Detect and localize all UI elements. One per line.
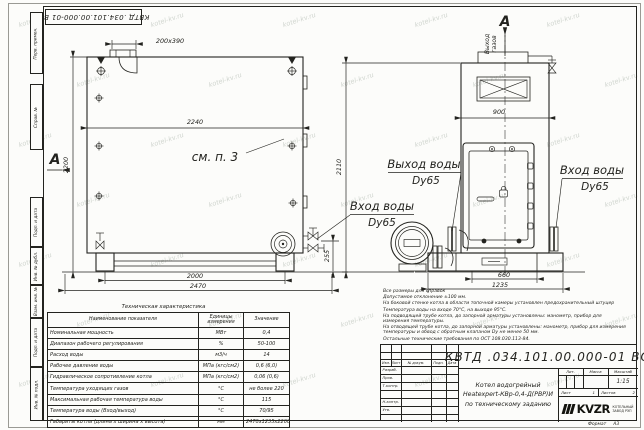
tb-row-tkontr: Т.контр. [381, 382, 403, 390]
spec-cell-unit: °С [199, 383, 244, 394]
spec-cell-unit: МВт [199, 328, 244, 339]
tb-sheet-value: 1 [593, 390, 595, 395]
dim-2000: 2000 [187, 272, 203, 280]
spec-row: Максимальная рабочая температура воды°С1… [48, 394, 290, 405]
tb-col-docnum: № докум. [401, 359, 431, 366]
dim-2470: 2470 [190, 282, 206, 290]
spec-cell-name: Номинальная мощность [48, 328, 199, 339]
spec-row: Диапазон рабочего регулирования%50-100 [48, 339, 290, 350]
tb-row-utv: Утв. [381, 406, 403, 414]
section-a-label-left: А [49, 152, 61, 168]
note-line: На боковой стенке котла в области топочн… [383, 301, 629, 306]
spec-row: Номинальная мощностьМВт0,4 [48, 328, 290, 339]
format-note: Формат А3 [588, 422, 619, 427]
water-inlet-mid-dy: Dy65 [368, 217, 396, 229]
tb-row-blank [381, 390, 403, 398]
spec-cell-name: Габариты котла (длина х ширина х высота) [48, 416, 199, 427]
spec-row: Гидравлическое сопротивление котлаМПа (к… [48, 372, 290, 383]
dim-255: 255 [323, 250, 331, 262]
spec-table: Наименование показателя Единицы измерени… [47, 312, 290, 428]
water-outlet-dy: Dy65 [412, 175, 440, 187]
inlet-valves-icon [303, 228, 324, 252]
water-outlet-label: Выход воды [387, 157, 460, 171]
nozzle-labels: Выход воды Dy65 Вход воды Dy65 Вход воды… [317, 157, 624, 239]
tb-col-list: Лист [391, 359, 401, 366]
explosion-hatch-icon [477, 77, 530, 101]
spec-cell-name: Рабочее давление воды [48, 361, 199, 372]
spec-cell-unit: МПа (кгс/см2) [199, 372, 244, 383]
tb-row-nkontr: Н.контр. [381, 398, 403, 406]
spec-cell-value: 0,6 (6,0) [244, 361, 290, 372]
tb-sheet-label: Лист [561, 390, 571, 395]
spec-cell-unit: м3/ч [199, 350, 244, 361]
product-name: Котел водогрейный Heatexpert-КВр-0,4-Д(Р… [458, 368, 558, 422]
drawing-designation: КВТД .034.101.00.000-01 ВО [458, 345, 638, 368]
tb-col-izm: Изм. [381, 359, 391, 366]
dim-2240: 2240 [187, 118, 203, 126]
spec-cell-unit: МПа (кгс/см2) [199, 361, 244, 372]
product-name-line: Heatexpert-КВр-0,4-Д(РВР)И [463, 390, 553, 400]
lifting-lug-icon [97, 57, 105, 64]
furnace-door [463, 143, 534, 248]
drain-valve-icon [96, 233, 104, 249]
blower-fan-icon [391, 222, 453, 271]
spec-cell-name: Температура уходящих газов [48, 383, 199, 394]
tb-sheets-cell: Листов 2 [598, 388, 638, 396]
drawing-sheet: kotel-kv.rukotel-kv.rukotel-kv.rukotel-k… [0, 0, 644, 430]
format-value: А3 [613, 422, 619, 427]
tb-sheets-label: Листов [601, 390, 616, 395]
note-line: Остальные технические требования по ОСТ … [383, 337, 629, 342]
tb-mass-label: Масса [583, 368, 608, 375]
tb-sheet-cell: Лист 1 [558, 388, 598, 396]
see-note-label: см. п. 3 [192, 150, 238, 164]
kvzr-logo: KVZR КОТЕЛЬНЫЙ ЗАВОД РЭП [563, 402, 634, 416]
dim-2110: 2110 [335, 159, 343, 175]
gas-exit-label-1: Выход [484, 34, 491, 54]
spec-cell-value: 0,06 (0,6) [244, 372, 290, 383]
logo-bars-icon [563, 404, 575, 414]
logo-caption-line: ЗАВОД РЭП [613, 409, 634, 413]
lifting-lug-icon [288, 57, 296, 64]
spec-header-units: Единицы измерения [199, 313, 244, 328]
boiler-front-view [391, 28, 585, 276]
spec-cell-name: Диапазон рабочего регулирования [48, 339, 199, 350]
spec-cell-name: Гидравлическое сопротивление котла [48, 372, 199, 383]
title-block: Изм. Лист № докум. Подп. Дата Разраб. Пр… [380, 344, 637, 421]
water-inlet-mid-label: Вход воды [350, 199, 414, 213]
spec-row: Расход водым3/ч14 [48, 350, 290, 361]
note-line: На отводящей трубе котла, до запорной ар… [383, 325, 629, 335]
water-inlet-right-dy: Dy65 [581, 181, 609, 193]
dim-660: 660 [498, 271, 510, 279]
spec-cell-value: 0,4 [244, 328, 290, 339]
spec-cell-value: 115 [244, 394, 290, 405]
manufacturer-logo-cell: KVZR КОТЕЛЬНЫЙ ЗАВОД РЭП [558, 396, 638, 422]
spec-row: Рабочее давление водыМПа (кгс/см2)0,6 (6… [48, 361, 290, 372]
tb-col-podp: Подп. [431, 359, 446, 366]
spec-cell-unit: °С [199, 405, 244, 416]
tb-sheets-value: 2 [633, 390, 635, 395]
spec-cell-unit: % [199, 339, 244, 350]
logo-text: KVZR [577, 402, 610, 416]
spec-cell-unit: мм [199, 416, 244, 427]
note-line: Температура воды на входе 70°С, на выход… [383, 308, 629, 313]
spec-header-value: Значение [244, 313, 290, 328]
spec-cell-value: 50-100 [244, 339, 290, 350]
product-name-line: Котел водогрейный [476, 381, 541, 391]
note-line: На подводящей трубе котла, до запорной а… [383, 314, 629, 324]
boiler-base [415, 253, 585, 272]
tb-row-razrab: Разраб. [381, 366, 403, 374]
spec-cell-value: не более 220 [244, 383, 290, 394]
format-label: Формат [588, 422, 606, 427]
dim-2200: 2200 [62, 157, 70, 173]
spec-cell-name: Температура воды (Вход/выход) [48, 405, 199, 416]
tb-row-prov: Пров. [381, 374, 403, 382]
spec-cell-value: 70/95 [244, 405, 290, 416]
side-view-dimensions: 2240 200x390 2200 см. п. 3 А 2000 2470 2… [47, 37, 339, 294]
spec-cell-value: 2470х1235х2200 [244, 416, 290, 427]
spec-cell-name: Расход воды [48, 350, 199, 361]
spec-cell-unit: °С [199, 394, 244, 405]
tb-scale-label: Масштаб [608, 368, 638, 375]
spec-row: Температура уходящих газов°Сне более 220 [48, 383, 290, 394]
product-name-line: по техническому заданию [465, 400, 551, 410]
gas-exit-label-2: газов [491, 35, 498, 53]
spec-row: Температура воды (Вход/выход)°С70/95 [48, 405, 290, 416]
dim-900: 900 [493, 108, 505, 116]
door-lock-icon [500, 186, 508, 197]
spec-cell-name: Максимальная рабочая температура воды [48, 394, 199, 405]
note-line: Допустимое отклонение ±100 мм. [383, 295, 629, 300]
spec-header-name: Наименование показателя [48, 313, 199, 328]
dim-1235: 1235 [492, 281, 508, 289]
section-a-label-right: А [499, 14, 511, 30]
note-line: Все размеры для справок [383, 289, 629, 294]
spec-table-title: Техническая характеристика [47, 304, 280, 310]
water-inlet-right-label: Вход воды [560, 163, 624, 177]
notes-block: Все размеры для справок Допустимое откло… [383, 289, 629, 343]
pump-flange-icon [271, 232, 295, 256]
spec-cell-value: 14 [244, 350, 290, 361]
spec-row: Габариты котла (длина х ширина х высота)… [48, 416, 290, 427]
tb-scale-value: 1:15 [608, 375, 638, 388]
spec-table-block: Техническая характеристика Наименование … [47, 304, 280, 428]
tb-lit-label: Лит. [558, 368, 583, 375]
dim-hatch-200x390: 200x390 [156, 37, 184, 45]
door-handle-icon [477, 197, 494, 201]
inlet-flange-icon [550, 227, 558, 251]
